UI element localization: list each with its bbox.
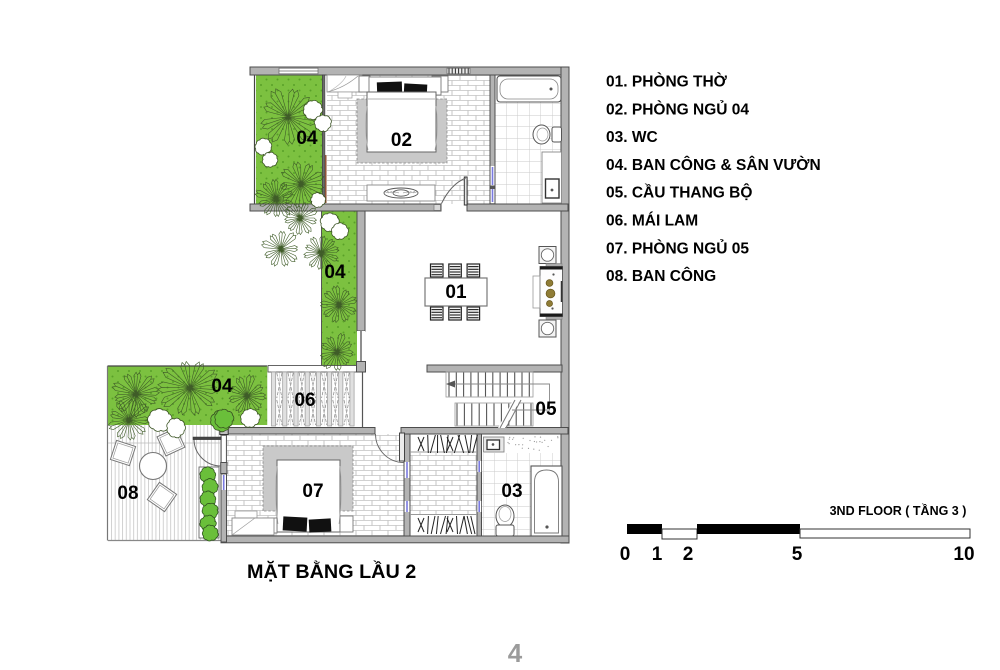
svg-text:03: 03 [501, 481, 522, 502]
svg-text:02. PHÒNG NGỦ 04: 02. PHÒNG NGỦ 04 [606, 100, 749, 118]
svg-text:05: 05 [535, 399, 557, 420]
svg-text:0: 0 [620, 544, 631, 565]
svg-text:06: 06 [294, 390, 315, 411]
svg-text:05. CẦU THANG BỘ: 05. CẦU THANG BỘ [606, 184, 752, 202]
svg-text:04: 04 [324, 262, 346, 283]
svg-text:04: 04 [211, 376, 233, 397]
svg-text:06. MÁI LAM: 06. MÁI LAM [606, 213, 698, 230]
svg-text:08: 08 [117, 483, 138, 504]
svg-text:01: 01 [445, 282, 467, 303]
svg-text:04. BAN CÔNG & SÂN VƯỜN: 04. BAN CÔNG & SÂN VƯỜN [606, 156, 821, 174]
svg-text:02: 02 [391, 130, 412, 151]
svg-text:5: 5 [792, 544, 803, 565]
svg-text:01. PHÒNG THỜ: 01. PHÒNG THỜ [606, 73, 728, 91]
svg-text:03. WC: 03. WC [606, 129, 658, 146]
svg-text:04: 04 [296, 128, 318, 149]
svg-text:2: 2 [683, 544, 694, 565]
svg-text:07. PHÒNG NGỦ 05: 07. PHÒNG NGỦ 05 [606, 239, 749, 257]
svg-text:10: 10 [953, 544, 974, 565]
svg-text:1: 1 [652, 544, 663, 565]
svg-text:MẶT BẰNG LẦU 2: MẶT BẰNG LẦU 2 [247, 559, 416, 583]
svg-text:3ND FLOOR ( TẦNG 3 ): 3ND FLOOR ( TẦNG 3 ) [830, 503, 967, 518]
svg-text:08. BAN CÔNG: 08. BAN CÔNG [606, 267, 716, 285]
svg-text:07: 07 [302, 481, 323, 502]
svg-text:4: 4 [508, 638, 523, 668]
